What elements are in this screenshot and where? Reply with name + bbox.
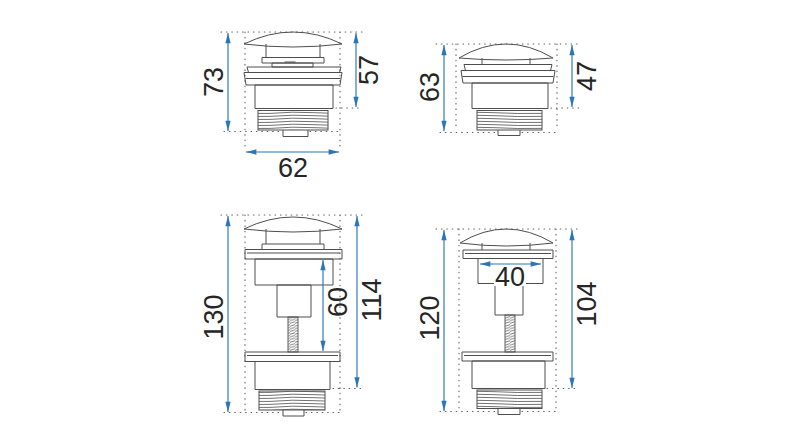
label-total-height: 63 (415, 72, 445, 102)
thread-section (259, 391, 325, 410)
view-bottom-right: 120 40 104 (415, 229, 602, 415)
view-top-left: 73 57 62 (199, 32, 384, 183)
label-body-height: 114 (357, 278, 387, 321)
threaded-rod (288, 317, 298, 352)
label-total-height: 130 (199, 294, 229, 339)
drawing-sheet: 73 57 62 63 47 130 60 114 120 40 (0, 0, 800, 446)
label-total-height: 120 (415, 295, 445, 340)
thread-section (258, 111, 328, 131)
thread-section (477, 390, 542, 409)
label-body-height: 104 (572, 281, 602, 326)
label-total-height: 73 (199, 67, 229, 97)
label-body-height: 47 (572, 61, 602, 91)
threaded-rod (505, 315, 515, 352)
label-body-height: 57 (354, 55, 384, 85)
label-cap-width: 40 (495, 262, 525, 292)
thread-section (477, 111, 542, 131)
drain-plug-dimension-diagram: 73 57 62 63 47 130 60 114 120 40 (0, 0, 800, 446)
extension-lines (221, 32, 363, 149)
label-width: 62 (278, 153, 308, 183)
view-top-right: 63 47 (415, 44, 602, 136)
view-bottom-left: 130 60 114 (199, 215, 387, 416)
label-rod-length: 60 (323, 287, 353, 317)
